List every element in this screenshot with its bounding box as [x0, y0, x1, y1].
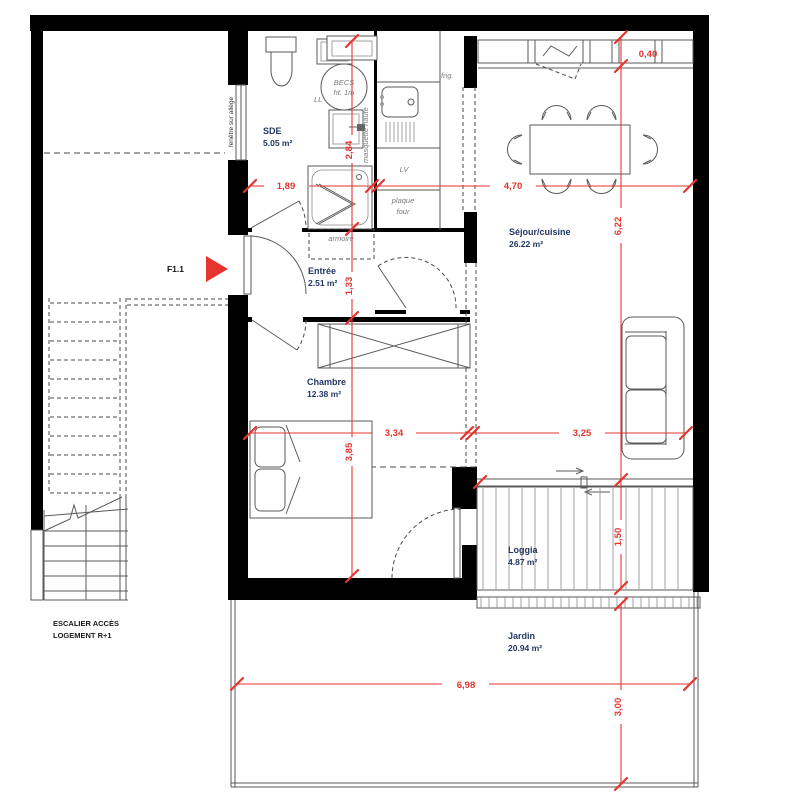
sofa: [622, 317, 684, 459]
room-name-jardin: Jardin: [508, 631, 535, 641]
room-name-entree: Entrée: [308, 266, 336, 276]
radiator-icon: [543, 46, 577, 56]
window-fenetre-sur-allege: [236, 85, 246, 160]
loggia-door: [392, 508, 461, 578]
stairs: [44, 298, 228, 600]
window-note-label: fenêtre sur allège: [228, 97, 235, 148]
water-heater: [321, 64, 367, 110]
room-area-chambre: 12.38 m²: [307, 389, 341, 399]
dim-chambre-width: 3,34: [385, 428, 404, 439]
entrance-door: [183, 236, 306, 305]
room-name-sde: SDE: [263, 126, 282, 136]
shower: [308, 166, 372, 229]
stair-note-1: ESCALIER ACCÈS: [53, 619, 119, 628]
wardrobe: [318, 324, 470, 368]
room-area-entree: 2.51 m²: [308, 278, 337, 288]
stair-note-2: LOGEMENT R+1: [53, 631, 112, 640]
dim-entree-depth: 1,33: [344, 277, 355, 296]
dim-chambre-depth: 3,85: [344, 442, 355, 461]
dim-jardin-depth: 3,00: [613, 698, 624, 717]
dim-ledge-depth: 0,40: [639, 49, 658, 60]
sde-door: [251, 201, 306, 228]
loggia-decking: [477, 487, 693, 590]
sejour-top-ledge: [478, 40, 693, 79]
dishwasher-label: LV: [400, 165, 410, 174]
kitchen-sink: [381, 87, 419, 142]
fridge-label: frig.: [441, 71, 454, 80]
dim-sejour-width: 4,70: [504, 181, 523, 192]
room-name-loggia: Loggia: [508, 545, 538, 555]
dim-sejour-lower-width: 3,25: [573, 428, 592, 439]
room-area-loggia: 4.87 m²: [508, 557, 537, 567]
cooktop-label-1: plaque: [391, 196, 415, 205]
cooktop-label-2: four: [397, 207, 410, 216]
toilet: [266, 37, 296, 86]
dim-sejour-depth: 6,22: [613, 217, 624, 236]
chambre-door: [252, 320, 306, 350]
sejour-door: [378, 257, 456, 308]
dim-sde-width: 1,89: [277, 181, 296, 192]
room-name-sejour: Séjour/cuisine: [509, 227, 571, 237]
floor-plan: F1.1 SDE 5.05 m² Entrée 2.51 m² Chambre …: [0, 0, 790, 800]
entrance-arrow-icon: [206, 256, 228, 282]
garden-threshold: [477, 597, 700, 608]
water-heater-label-2: ht. 1m: [334, 88, 355, 97]
room-name-chambre: Chambre: [307, 377, 346, 387]
unit-label: F1.1: [167, 264, 184, 274]
dim-jardin-width: 6,98: [457, 680, 476, 691]
room-area-sejour: 26.22 m²: [509, 239, 543, 249]
wardrobe-label: armoire: [328, 234, 353, 243]
floor-plan-drawing: F1.1 SDE 5.05 m² Entrée 2.51 m² Chambre …: [0, 0, 790, 800]
dim-loggia-depth: 1,50: [613, 528, 624, 547]
water-heater-label-1: BECS: [334, 78, 354, 87]
high-unit-label: masquette haute: [361, 107, 370, 163]
washing-machine-label: LL: [314, 95, 322, 104]
dim-sde-depth: 2,84: [344, 140, 355, 159]
room-area-sde: 5.05 m²: [263, 138, 292, 148]
dining-table: [530, 125, 630, 174]
bed: [250, 421, 372, 518]
room-area-jardin: 20.94 m²: [508, 643, 542, 653]
